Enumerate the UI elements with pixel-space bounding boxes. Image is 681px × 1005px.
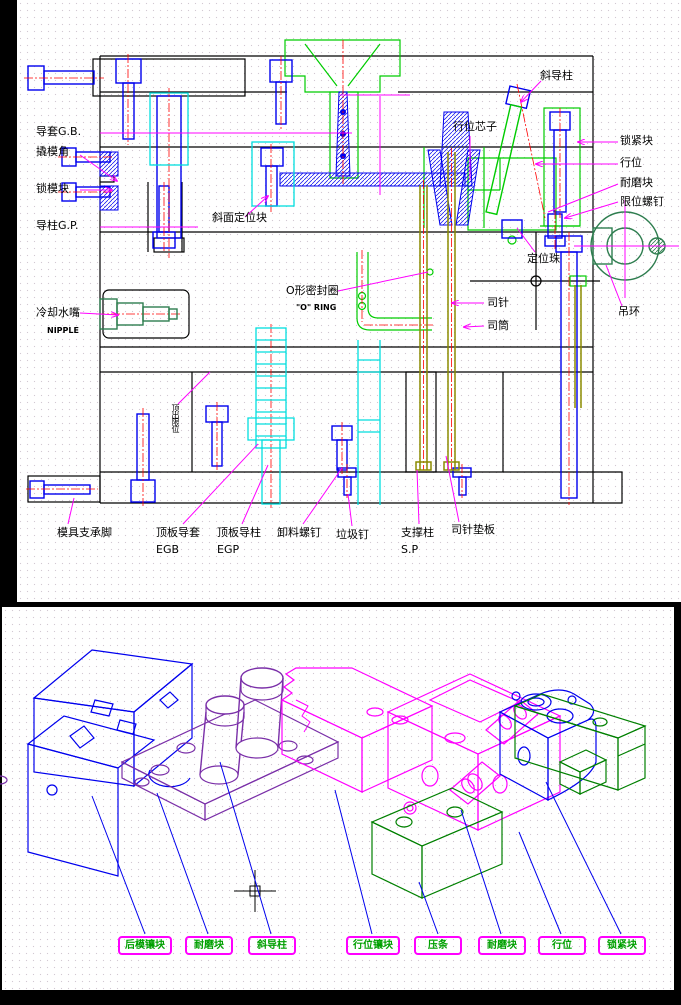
label-support-pillar: 支撑柱 [401, 527, 434, 539]
tag-rear-insert: 后模镶块 [118, 936, 172, 955]
leader-lines [68, 81, 679, 526]
angle-pin-plate [0, 668, 338, 820]
label-wear-block: 耐磨块 [620, 177, 653, 189]
label-ball-catch: 定位珠 [527, 253, 560, 265]
tag-angle-pin: 斜导柱 [248, 936, 296, 955]
tag-slide-insert: 行位镶块 [346, 936, 400, 955]
label-slide-core: 行位芯子 [453, 121, 497, 133]
label-ejector-plate-bushing: 顶板导套 [156, 527, 200, 539]
centerlines [24, 40, 569, 508]
label-cooling-nozzle: 冷却水嘴 [36, 307, 80, 319]
tag-wear-block-right: 耐磨块 [478, 936, 526, 955]
label-angled-locating-block: 斜面定位块 [212, 212, 267, 224]
mold-plates [28, 56, 622, 503]
label-ejector-sleeve: 司筒 [487, 320, 509, 332]
label-ejector-limit: 顶出限位 [169, 404, 181, 432]
label-eye-bolt: 吊环 [618, 306, 640, 318]
mold-drawing [0, 0, 681, 1005]
label-guide-pillar: 导柱G.P. [36, 220, 78, 232]
label-mold-lock-block: 锁模块 [36, 183, 69, 195]
label-guide-bushing: 导套G.B. [36, 126, 81, 138]
label-limit-screw: 限位螺钉 [620, 196, 664, 208]
press-strips [372, 694, 645, 898]
label-pry-corner: 撬模角 [36, 146, 69, 158]
tag-press-strip: 压条 [414, 936, 462, 955]
tag-locking-block: 锁紧块 [598, 936, 646, 955]
label-o-ring-en: "O" RING [296, 302, 336, 314]
crosshair-cursor [234, 870, 276, 912]
tag-leaders [92, 762, 621, 934]
label-locking-block: 锁紧块 [620, 135, 653, 147]
label-stripper-screw: 卸料螺钉 [277, 527, 321, 539]
tag-slide: 行位 [538, 936, 586, 955]
cad-drawing-page: { "title": "注塑模具装配图 (injection mold asse… [0, 0, 681, 1005]
tag-wear-block-left: 耐磨块 [185, 936, 233, 955]
label-o-ring: O形密封圈 [286, 285, 339, 297]
label-egp-code: EGP [217, 544, 239, 556]
label-ejector-pin-plate: 司针垫板 [451, 524, 495, 536]
label-nipple-en: NIPPLE [47, 325, 79, 337]
label-egb-code: EGB [156, 544, 179, 556]
label-ejector-plate-pin: 顶板导柱 [217, 527, 261, 539]
label-ejector-pin: 司针 [487, 297, 509, 309]
label-mold-foot: 模具支承脚 [57, 527, 112, 539]
label-angle-pin: 斜导柱 [540, 70, 573, 82]
label-sp-code: S.P [401, 544, 418, 556]
label-stop-pin: 垃圾钉 [336, 529, 369, 541]
label-slide: 行位 [620, 157, 642, 169]
